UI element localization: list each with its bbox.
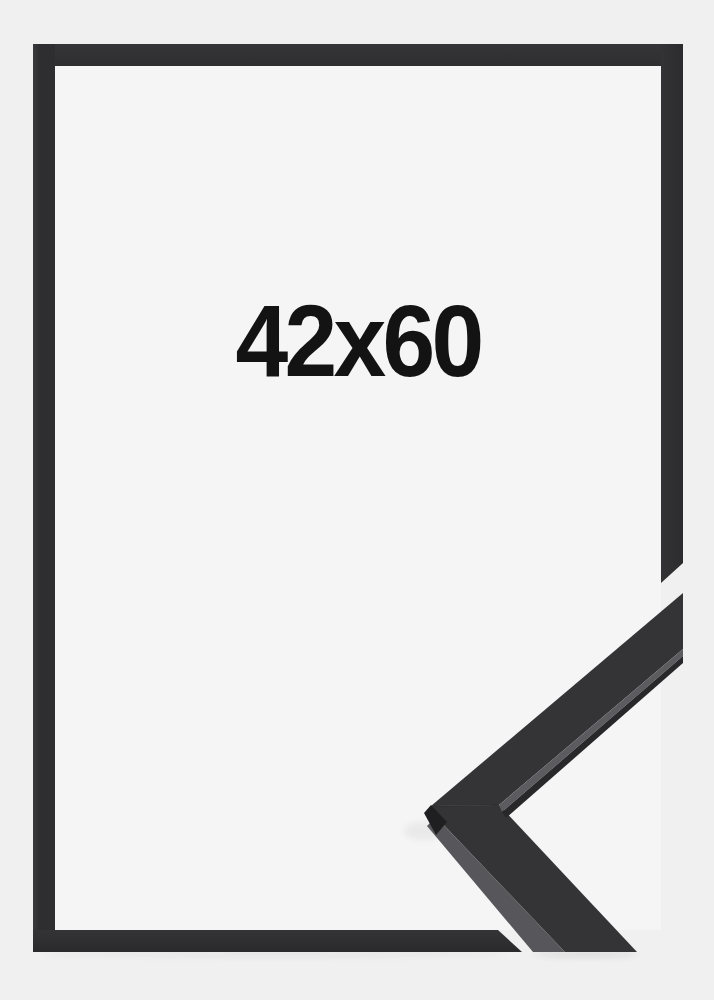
frame-right-bar — [661, 44, 683, 583]
frame-top-bar — [33, 44, 683, 66]
product-image: 42x60 — [0, 0, 714, 1000]
size-label: 42x60 — [76, 290, 640, 392]
corner-sample-shadow — [532, 951, 640, 958]
frame-left-bar — [33, 44, 55, 952]
frame-inner-area — [55, 66, 661, 930]
corner-vertex-shadow — [404, 822, 444, 840]
frame-bottom-bar — [33, 930, 522, 952]
